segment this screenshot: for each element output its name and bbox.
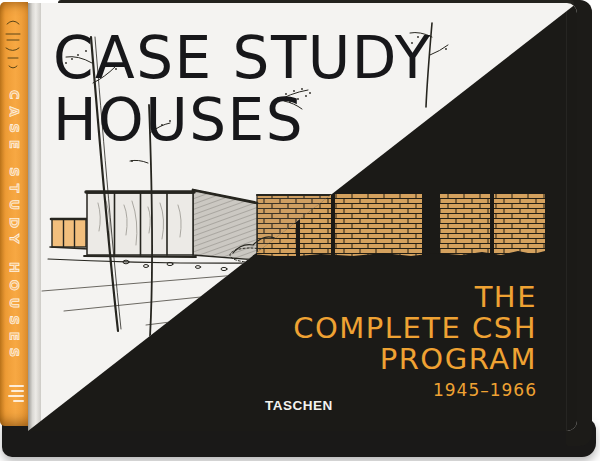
cover-title-line1: CASE STUDY bbox=[53, 27, 432, 89]
cover-subtitle-line2: COMPLETE CSH bbox=[293, 313, 537, 344]
cover-years: 1945–1966 bbox=[433, 380, 537, 400]
cover-title-line2: HOUSES bbox=[53, 89, 432, 151]
book-spine: CASE STUDY HOUSES bbox=[0, 2, 28, 426]
cover-right-seam bbox=[566, 3, 567, 431]
book: CASE STUDY HOUSES bbox=[0, 0, 600, 461]
cover-subtitle-line3: PROGRAM bbox=[293, 344, 537, 375]
spine-thumbnail-sketch bbox=[3, 16, 23, 78]
cover-subtitle-line1: THE bbox=[293, 282, 537, 313]
spine-title: CASE STUDY HOUSES bbox=[7, 90, 22, 364]
spine-authors-microtext bbox=[0, 385, 24, 402]
book-product-image: CASE STUDY HOUSES bbox=[0, 0, 600, 461]
cover-subtitle: THE COMPLETE CSH PROGRAM bbox=[293, 282, 537, 375]
publisher-logo: TASCHEN bbox=[265, 398, 333, 413]
front-cover: CASE STUDY HOUSES THE COMPLETE CSH PROGR… bbox=[28, 3, 577, 431]
cover-title: CASE STUDY HOUSES bbox=[53, 27, 432, 151]
